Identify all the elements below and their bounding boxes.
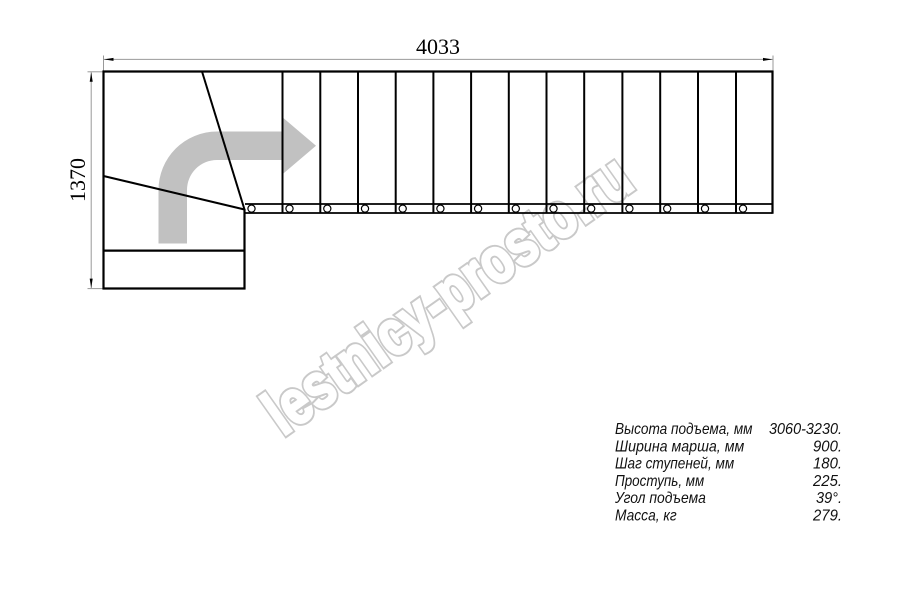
svg-text:1370: 1370 (65, 158, 90, 202)
svg-text:Высота подъема, мм: Высота подъема, мм (615, 421, 753, 438)
svg-text:900.: 900. (813, 438, 842, 455)
svg-text:39°.: 39°. (816, 490, 842, 507)
svg-text:Шаг ступеней, мм: Шаг ступеней, мм (615, 456, 734, 473)
svg-text:180.: 180. (813, 456, 842, 473)
svg-text:225.: 225. (812, 473, 842, 490)
svg-text:279.: 279. (812, 508, 842, 525)
svg-text:Масса, кг: Масса, кг (615, 508, 677, 525)
svg-text:4033: 4033 (416, 34, 460, 59)
svg-text:3060-3230.: 3060-3230. (769, 421, 842, 438)
svg-text:Проступь, мм: Проступь, мм (615, 473, 704, 490)
svg-text:Ширина марша, мм: Ширина марша, мм (615, 438, 744, 455)
svg-text:Угол подъема: Угол подъема (614, 490, 706, 507)
